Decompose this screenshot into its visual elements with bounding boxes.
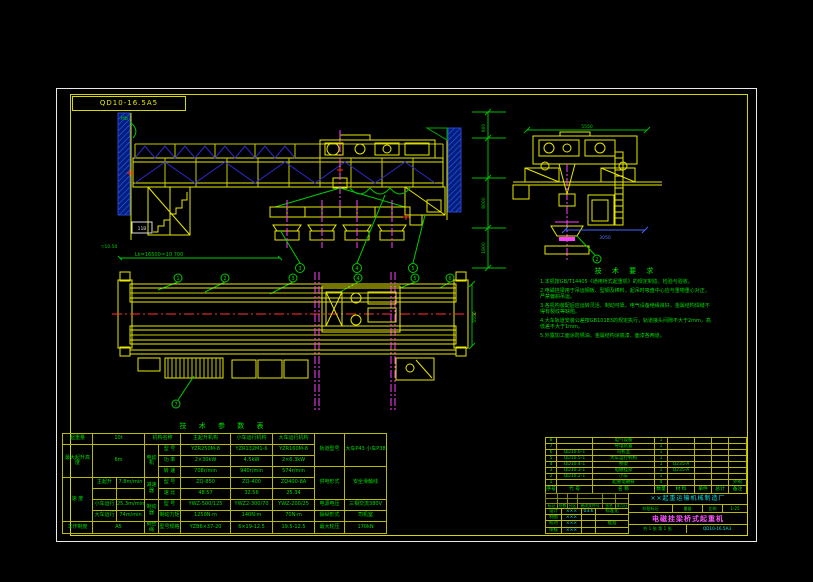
row-label: 型 号: [159, 500, 181, 511]
speed-sub-value: 74m/min: [117, 511, 145, 522]
cell: 140N·m: [231, 511, 273, 522]
end-view-cab: [588, 152, 623, 225]
motor-group: 电动机: [145, 445, 159, 478]
chain-dim-3: 1800: [481, 242, 487, 254]
cell: 708r/min: [181, 467, 231, 478]
bom-table: 8电气设备 1 7导电装置 1 6QD10.6-1司机室 1 5QD10.5-1…: [545, 437, 747, 494]
title-block: ××起重运输机械制造厂 阶段标记 重量 比例 1:25 电磁挂梁桥式起重机 共 …: [628, 493, 747, 533]
duty-value: A5: [93, 522, 145, 534]
row-label: 转 速: [159, 467, 181, 478]
voltage-label: 电源电压: [315, 500, 345, 511]
rail-level-mark: ▽10.50: [101, 244, 117, 250]
rail-value: 大车P43 小车P38: [345, 434, 387, 467]
speed-sub-label: 小车运行: [93, 500, 117, 511]
cell: 25.34: [273, 489, 315, 500]
cell: 6×19-12.5: [231, 522, 273, 534]
control-label: 操纵形式: [315, 511, 345, 522]
row-label: 功 率: [159, 456, 181, 467]
sheet-count: 共 1 张 第 1 张: [629, 525, 687, 533]
brake-group: 制动器: [145, 500, 159, 522]
bridge-girder: [133, 158, 443, 187]
mech-col-trolley: 小车运行机构: [231, 434, 273, 445]
signature-row: 审核×××: [546, 527, 629, 533]
cad-drawing-canvas: QD10-16.5A5: [0, 0, 813, 582]
cell: 70N·m: [273, 511, 315, 522]
note-item: 2.电磁挂梁用于吊运钢板、型钢及棒料，起吊时吸盘中心应与重物重心对正，严禁偏斜吊…: [540, 288, 712, 301]
technical-notes: 技 术 要 求 1.本机按GB/T14405《通用桥式起重机》的规定制造、检验与…: [540, 266, 712, 341]
plan-right-dim: 5550: [469, 281, 478, 349]
chain-dim-1: 900: [481, 124, 487, 133]
girder-diagonal-bracing: [135, 162, 435, 183]
mech-col-bridge: 大车运行机构: [273, 434, 315, 445]
scale-label: 比例: [703, 505, 723, 512]
plan-width-dim: 5550: [472, 311, 478, 323]
supply-value: 安全滑触线: [345, 467, 387, 500]
cell: 19.5-12.5: [273, 522, 315, 534]
note-item: 5.外露加工面涂防锈油，金属结构涂底漆、面漆各两道。: [540, 333, 712, 340]
speed-label: 速 度: [63, 478, 93, 522]
plan-balloon-3: 3: [291, 276, 294, 282]
stage-mark-label: 阶段标记: [629, 505, 673, 512]
plan-bottom-balloon: 7: [172, 376, 194, 408]
note-item: 3.各机构装配后应运转灵活、制动可靠，电气设备绝缘良好，金属结构焊缝不得有裂纹等…: [540, 303, 712, 316]
supply-label: 供电形式: [315, 467, 345, 500]
speed-sub-label: 大车运行: [93, 511, 117, 522]
span-dimension: Lk=16500＝10 700: [135, 252, 183, 258]
control-value: 司机室: [345, 511, 387, 522]
params-table: 起重量 10t 机构名称 主起升机构 小车运行机构 大车运行机构 轨道型号 大车…: [62, 433, 387, 534]
mech-col-hoist: 主起升机构: [181, 434, 231, 445]
end-bottom-dim: 3050: [599, 235, 611, 241]
note-item: 1.本机按GB/T14405《通用桥式起重机》的规定制造、检验与验收。: [540, 279, 712, 286]
cell: YZR160M-8: [273, 445, 315, 456]
reducer-group: 减速器: [145, 478, 159, 500]
cell: YWZ-500/125: [181, 500, 231, 511]
wheel-load-value: 170kN: [345, 522, 387, 534]
speed-sub-label: 主起升: [93, 478, 117, 489]
speed-sub-label: [93, 489, 117, 500]
title-block-bottom: 共 1 张 第 1 张 QD10-16.5A3: [629, 525, 747, 533]
signature-table: 设计××× 03.6标准化 制图××× 校对××× 批准 审核×××: [545, 508, 629, 534]
plan-walkway: [130, 350, 456, 380]
cell: YZR250M-8: [181, 445, 231, 456]
row-label: 型 号: [159, 445, 181, 456]
speed-sub-value: [117, 489, 145, 500]
row-label: 型号规格: [159, 522, 181, 534]
lifting-magnets: [273, 225, 406, 240]
stage-row: 阶段标记 重量 比例 1:25: [629, 505, 747, 513]
cell: 32.56: [231, 489, 273, 500]
capacity-value: 10t: [93, 434, 145, 445]
end-top-dim: 5550: [581, 124, 593, 130]
plan-balloon-6: 6: [448, 276, 451, 282]
drawing-number: QD10-16.5A3: [687, 525, 747, 533]
cell: ZQ-850: [181, 478, 231, 489]
end-view-girders: [513, 168, 662, 199]
speed-sub-value: 25.3m/min: [117, 500, 145, 511]
row-label: 型 号: [159, 478, 181, 489]
params-table-title: 技 术 参 数 表: [62, 421, 386, 431]
note-item: 4.大车轨道安装公差按GB10183的规定执行，轨道接头间隙不大于2mm，高低差…: [540, 318, 712, 331]
plan-balloon-2: 2: [223, 276, 226, 282]
end-platform-stair: [148, 187, 190, 235]
height-label: 最大起升高度: [63, 445, 93, 478]
capacity-label: 起重量: [63, 434, 93, 445]
voltage-value: 三相交流380V: [345, 500, 387, 511]
hb-label: Hb: [121, 116, 128, 122]
plan-balloon-4: 4: [356, 276, 359, 282]
cell: 574r/min: [273, 467, 315, 478]
wheel-load-label: 最大轮压: [315, 522, 345, 534]
cell: 4.5kW: [231, 456, 273, 467]
cell: YWZ-200/25: [273, 500, 315, 511]
signature-row: 设计××× 03.6标准化: [546, 509, 629, 515]
under-girder-platform: [350, 187, 445, 225]
plan-balloon-5: 5: [413, 276, 416, 282]
mech-name-header: 机构名称: [145, 434, 181, 445]
drawing-title: 电磁挂梁桥式起重机: [629, 513, 747, 525]
duty-label: 工作制度: [63, 522, 93, 534]
girder-railing: [135, 144, 443, 158]
notes-title: 技 术 要 求: [540, 266, 712, 276]
weight-label: 重量: [673, 505, 703, 512]
revision-table: 标记处数 分区更改文件号 签名年月日: [545, 493, 629, 509]
height-value: 6m: [93, 445, 145, 478]
cell: 48.57: [181, 489, 231, 500]
row-label: 速 比: [159, 489, 181, 500]
balloon-2: 2: [595, 257, 598, 263]
plan-view: 1 2 3 4 5 6: [110, 272, 480, 422]
cell: YZB6×37-20: [181, 522, 231, 534]
scale-value: 1:25: [723, 505, 747, 512]
rail-label: 轨道型号: [315, 434, 345, 467]
speed-sub-value: 7.8m/min: [117, 478, 145, 489]
centerlines: [287, 130, 392, 248]
cell: 1250N·m: [181, 511, 231, 522]
cab-box-label: 11B: [138, 226, 147, 232]
cell: ZQ400-8A: [273, 478, 315, 489]
row-label: 制动力矩: [159, 511, 181, 522]
end-view: 5550: [505, 122, 670, 267]
left-building-column: [118, 113, 131, 240]
trolley: [320, 135, 435, 158]
plan-balloon-7: 7: [174, 402, 177, 408]
plan-balloon-1: 1: [176, 276, 179, 282]
plan-stair-hatch: [165, 358, 223, 378]
cell: YWZ2-300/70: [231, 500, 273, 511]
cell: YZR132M1-6: [231, 445, 273, 456]
chain-dim-2: 8000: [481, 197, 487, 209]
cell: 2×30kW: [181, 456, 231, 467]
elevation-view: 11B: [75, 100, 475, 275]
cell: 940r/min: [231, 467, 273, 478]
company-name: ××起重运输机械制造厂: [629, 493, 747, 505]
rope-group: 钢丝绳: [145, 522, 159, 534]
cell: 2×6.3kW: [273, 456, 315, 467]
cell: ZQ-400: [231, 478, 273, 489]
cab-access-box: 11B: [132, 222, 152, 233]
